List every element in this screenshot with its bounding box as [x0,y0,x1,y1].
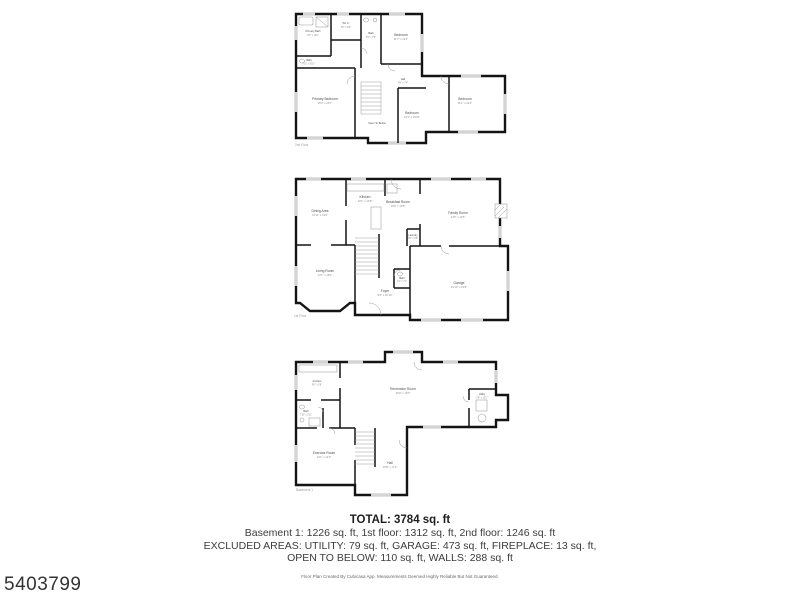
room-label: Hall [387,461,393,465]
room-dims: 9'0" x 5'8" [312,385,322,387]
room-label: Bedroom [405,111,419,115]
room-dims: 11'11" x 13'0" [312,213,328,217]
toilet [398,272,403,276]
floor-caption: 2nd Floor [295,143,309,147]
room-dims: 5'6" x 7'6" [366,37,376,39]
room-dims: 12'3" x 15'10" [404,115,420,119]
room-label: Utility [479,392,486,396]
room-dims: 13'1" x 18'4" [318,273,333,277]
room-dims: 10'5" x 10'5" [391,204,406,208]
room-label: Bath [303,409,309,413]
floor-plan-1st-floor: Dining Area 11'11" x 13'0" Kitchen 10'1"… [291,176,512,328]
area-summary: TOTAL: 3784 sq. ft Basement 1: 1226 sq. … [0,514,800,580]
room-dims: 21'10" x 21'8" [451,285,467,289]
room-dims: 14'5" x 19'6" [451,215,466,219]
room-dims: 13'8" x 17'2" [383,465,398,469]
room-dims: 11'1" x 14'0" [458,101,473,105]
room-dims: 40'9" x 19'0" [396,391,411,395]
room-label: Open To Below [368,121,386,125]
room-label: W.I.C. [342,21,349,25]
room-label: Exercise Room [313,451,336,455]
room-label: Kitchen [360,195,371,199]
disclaimer: Floor Plan Created By Cubicasa App. Meas… [0,574,800,580]
floor-caption: 1st Floor [294,314,307,318]
room-label: Family Room [448,211,468,215]
exterior-walls [296,352,508,495]
room-label: Breakfast Room [386,200,410,204]
room-dims: 5'4" x 13'2" [476,398,488,400]
room-label: Bath [399,276,405,280]
room-dims: 11'7" x 13'4" [394,37,409,41]
excluded-areas-line-2: OPEN TO BELOW: 110 sq. ft, WALLS: 288 sq… [0,552,800,565]
room-dims: 10'1" x 14'8" [358,199,373,203]
room-dims: 6'0" x 6'9" [408,238,418,240]
room-label: Living Room [316,269,335,273]
room-dims: 9'6" x 10'10" [378,293,393,297]
room-label: Bath [306,58,312,62]
floor-plan-2nd-floor: Primary Bath 8'3" x 12'0" Bath 6'2" x 3'… [293,12,511,148]
room-dims: 15'3" x 20'7" [318,101,333,105]
room-label: Laundry [408,233,418,237]
floor-areas-line: Basement 1: 1226 sq. ft, 1st floor: 1312… [0,527,800,540]
room-dims: 8'3" x 12'0" [307,35,319,37]
room-label: Garage [454,281,465,285]
room-label: Foyer [381,289,390,293]
room-label: Dining Area [311,209,328,213]
listing-id: 5403799 [4,574,81,596]
room-label: Kitchen [313,379,322,383]
room-label: Hall [401,77,406,81]
room-dims: 9'6" x 7'4" [398,83,408,85]
floor-caption: Basement 1 [296,488,313,492]
room-dims: 3'1" x 7'1" [397,281,407,283]
kitchen-fixtures [299,365,337,372]
room-label: Primary Bath [306,29,322,33]
room-dims: 13'1" x 14'9" [317,455,332,459]
room-dims: 6'2" x 3'10" [303,64,315,66]
room-dims: 5'6" x 5'8" [341,27,351,29]
room-label: Recreation Room [390,387,416,391]
excluded-areas-line-1: EXCLUDED AREAS: UTILITY: 79 sq. ft, GARA… [0,540,800,553]
floor-plan-basement: Kitchen 9'0" x 5'8" Recreation Room 40'9… [293,350,512,498]
room-label: Bedroom [394,33,408,37]
room-label: Bedroom [458,97,472,101]
room-label: Bath [368,31,374,35]
room-label: Primary Bedroom [312,97,338,101]
room-dims: 7'10" x 5'11" [300,415,313,417]
fireplace [495,204,507,218]
total-area: TOTAL: 3784 sq. ft [0,514,800,527]
